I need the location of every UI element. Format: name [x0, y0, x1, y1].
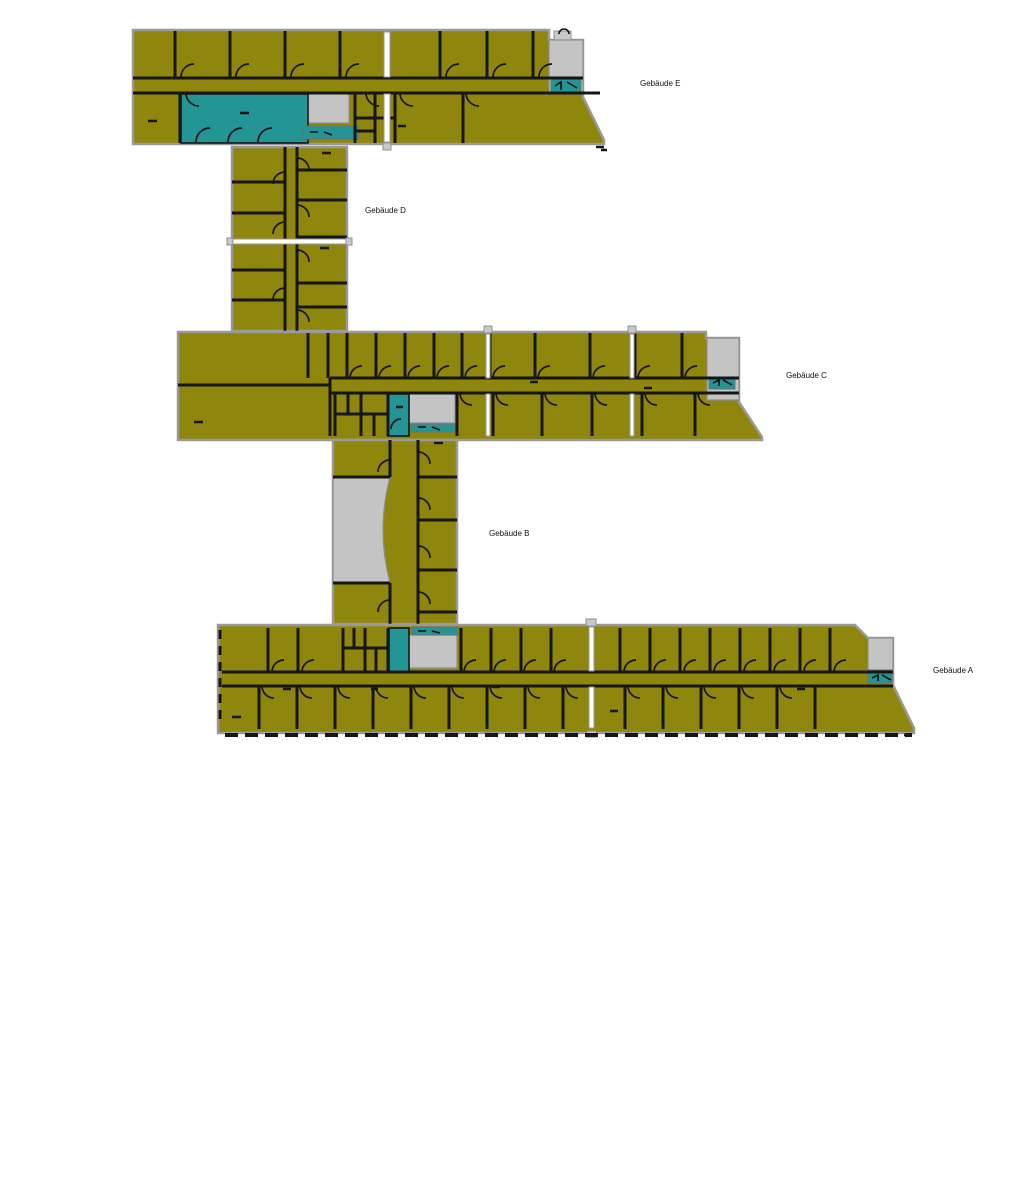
building-a-expansion-joint-upper	[589, 627, 594, 671]
building-e-joint-tab	[383, 143, 391, 150]
building-a-label: Gebäude A	[933, 666, 974, 675]
building-c-joint-1b	[486, 394, 490, 436]
building-b-label: Gebäude B	[489, 529, 529, 538]
building-c-joint-2a	[630, 334, 634, 378]
building-c-label: Gebäude C	[786, 371, 827, 380]
building-d-expansion-joint	[233, 239, 346, 244]
building-c-joint-tab-1	[484, 326, 492, 333]
building-c-joint-2b	[630, 394, 634, 436]
building-e-label: Gebäude E	[640, 79, 680, 88]
building-e-special-room	[181, 94, 308, 143]
building-a-special-room	[389, 628, 409, 672]
building-a-expansion-joint-lower	[589, 687, 594, 728]
building-c-service-room	[409, 393, 455, 423]
building-e-expansion-joint-lower	[384, 94, 390, 142]
building-d-label: Gebäude D	[365, 206, 406, 215]
building-e-service-room	[303, 92, 349, 123]
building-a-service-room	[408, 635, 457, 668]
floor-plan-page: Gebäude E Gebäude D Gebäude C Gebäude B …	[0, 0, 1028, 1200]
building-a-joint-tab-top	[586, 619, 596, 626]
building-d-joint-tab-right	[346, 238, 352, 245]
building-c-joint-tab-2	[628, 326, 636, 333]
building-c	[178, 326, 762, 440]
building-c-special-room	[388, 394, 409, 436]
building-c-joint-1a	[486, 334, 490, 378]
building-c-stair-core	[707, 338, 739, 400]
building-d-joint-tab-left	[227, 238, 233, 245]
building-a-footprint	[218, 625, 914, 733]
building-b	[333, 440, 457, 624]
building-e	[133, 29, 607, 150]
building-d	[227, 147, 352, 331]
building-e-expansion-joint-upper	[384, 32, 390, 77]
floor-plan-canvas: Gebäude E Gebäude D Gebäude C Gebäude B …	[0, 0, 1028, 1200]
building-b-atrium	[333, 477, 390, 583]
building-a	[218, 619, 914, 737]
